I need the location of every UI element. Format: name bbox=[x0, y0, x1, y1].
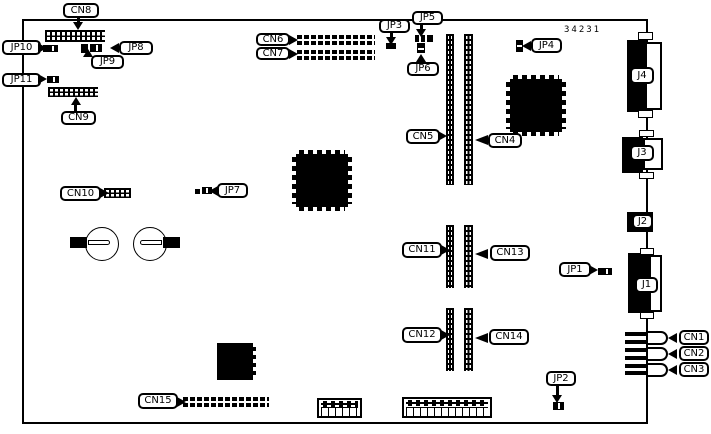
callout-jp7: JP7 bbox=[217, 183, 248, 198]
jp1-pointer bbox=[589, 265, 598, 275]
jp4-pointer bbox=[522, 41, 531, 51]
jumper-jp7-block-a bbox=[195, 189, 200, 194]
connector-cn13-slot bbox=[464, 225, 473, 288]
callout-cn5: CN5 bbox=[406, 129, 440, 144]
connector-cn6 bbox=[297, 35, 375, 45]
cn4-pointer bbox=[475, 135, 488, 145]
j3-mount-tab-bottom bbox=[639, 172, 654, 179]
callout-jp10: JP10 bbox=[2, 40, 41, 55]
terminal-block-small bbox=[317, 398, 362, 418]
callout-cn8: CN8 bbox=[63, 3, 99, 18]
j4-mount-tab-bottom bbox=[638, 110, 653, 118]
cn2-wire-bottom bbox=[625, 356, 646, 360]
callout-cn7: CN7 bbox=[256, 47, 290, 60]
connector-cn5-slot bbox=[446, 34, 454, 185]
callout-jp4: JP4 bbox=[531, 38, 562, 53]
j4-mount-tab-top bbox=[638, 32, 653, 40]
jumper-jp2-block bbox=[553, 402, 564, 410]
callout-cn6: CN6 bbox=[256, 33, 290, 46]
jp2-pointer bbox=[552, 395, 562, 403]
callout-jp2: JP2 bbox=[546, 371, 576, 386]
callout-cn11: CN11 bbox=[402, 242, 442, 258]
cn1-wire-top bbox=[625, 332, 646, 336]
callout-jp3: JP3 bbox=[379, 19, 410, 33]
jp6-pointer bbox=[416, 54, 426, 62]
callout-jp11: JP11 bbox=[2, 73, 41, 87]
j1-mount-tab-top bbox=[640, 248, 654, 255]
connector-cn15 bbox=[183, 397, 269, 407]
cn1-wire-bottom bbox=[625, 340, 646, 344]
jp8-pointer bbox=[110, 43, 119, 53]
ic-center-qfp bbox=[296, 154, 348, 207]
jp10-pointer bbox=[38, 43, 47, 53]
label-j1: J1 bbox=[635, 277, 658, 293]
j3-mount-tab-top bbox=[639, 130, 654, 137]
connector-cn2 bbox=[646, 347, 668, 361]
connector-cn14-slot bbox=[464, 308, 473, 371]
callout-cn1: CN1 bbox=[679, 330, 709, 345]
battery-left-needle bbox=[88, 240, 110, 245]
cn13-pointer bbox=[475, 249, 488, 259]
cn14-pointer bbox=[475, 333, 488, 343]
connector-cn3 bbox=[646, 363, 668, 377]
label-j2: J2 bbox=[632, 214, 653, 229]
callout-cn14: CN14 bbox=[489, 329, 529, 345]
callout-cn12: CN12 bbox=[402, 327, 442, 343]
ic-bottomleft-chip bbox=[217, 343, 253, 380]
jp5-pointer bbox=[416, 29, 426, 37]
callout-jp6: JP6 bbox=[407, 62, 439, 76]
jumper-jp6-block bbox=[417, 43, 425, 53]
connector-cn4-slot bbox=[464, 34, 473, 185]
cn11-pointer bbox=[441, 245, 450, 255]
cn15-pointer bbox=[177, 397, 186, 407]
connector-cn9 bbox=[48, 87, 98, 97]
pcb-diagram: 34231 bbox=[0, 0, 711, 434]
connector-cn1 bbox=[646, 331, 668, 345]
cn6-pointer bbox=[289, 35, 298, 45]
callout-cn2: CN2 bbox=[679, 346, 709, 361]
jumper-jp11-block bbox=[47, 76, 59, 83]
cn7-pointer bbox=[289, 49, 298, 59]
battery-left-tab bbox=[70, 237, 87, 248]
callout-jp5: JP5 bbox=[412, 11, 443, 25]
callout-jp1: JP1 bbox=[559, 262, 591, 277]
battery-right-tab bbox=[163, 237, 180, 248]
cn8-pointer bbox=[73, 22, 83, 30]
connector-cn7 bbox=[297, 50, 375, 60]
jp9-pointer bbox=[83, 49, 93, 57]
part-number: 34231 bbox=[564, 25, 601, 35]
connector-cn11-slot bbox=[446, 225, 454, 288]
ic-topright-qfp bbox=[510, 79, 562, 132]
cn5-pointer bbox=[438, 131, 447, 141]
callout-cn4: CN4 bbox=[488, 133, 522, 148]
callout-cn3: CN3 bbox=[679, 362, 709, 377]
callout-jp8: JP8 bbox=[119, 41, 153, 55]
cn1-pointer bbox=[668, 333, 677, 343]
connector-cn8 bbox=[45, 30, 105, 42]
jp11-pointer bbox=[38, 74, 47, 84]
callout-cn15: CN15 bbox=[138, 393, 178, 409]
jp7-pointer bbox=[209, 186, 218, 196]
jumper-jp1-block bbox=[598, 268, 612, 275]
cn12-pointer bbox=[441, 330, 450, 340]
callout-cn10: CN10 bbox=[60, 186, 101, 201]
cn2-wire-top bbox=[625, 348, 646, 352]
callout-jp9: JP9 bbox=[91, 55, 124, 69]
cn10-pointer bbox=[100, 188, 109, 198]
cn3-wire-bottom bbox=[625, 371, 646, 375]
cn3-wire-top bbox=[625, 364, 646, 368]
j1-mount-tab-bottom bbox=[640, 312, 654, 319]
callout-cn9: CN9 bbox=[61, 111, 96, 125]
jp3-pointer bbox=[386, 37, 396, 45]
cn3-pointer bbox=[668, 365, 677, 375]
cn9-pointer-line bbox=[74, 104, 77, 112]
cn2-pointer bbox=[668, 349, 677, 359]
label-j4: J4 bbox=[630, 67, 654, 84]
terminal-block-large bbox=[402, 397, 492, 418]
battery-right-needle bbox=[140, 240, 162, 245]
callout-cn13: CN13 bbox=[490, 245, 530, 261]
label-j3: J3 bbox=[630, 145, 654, 161]
